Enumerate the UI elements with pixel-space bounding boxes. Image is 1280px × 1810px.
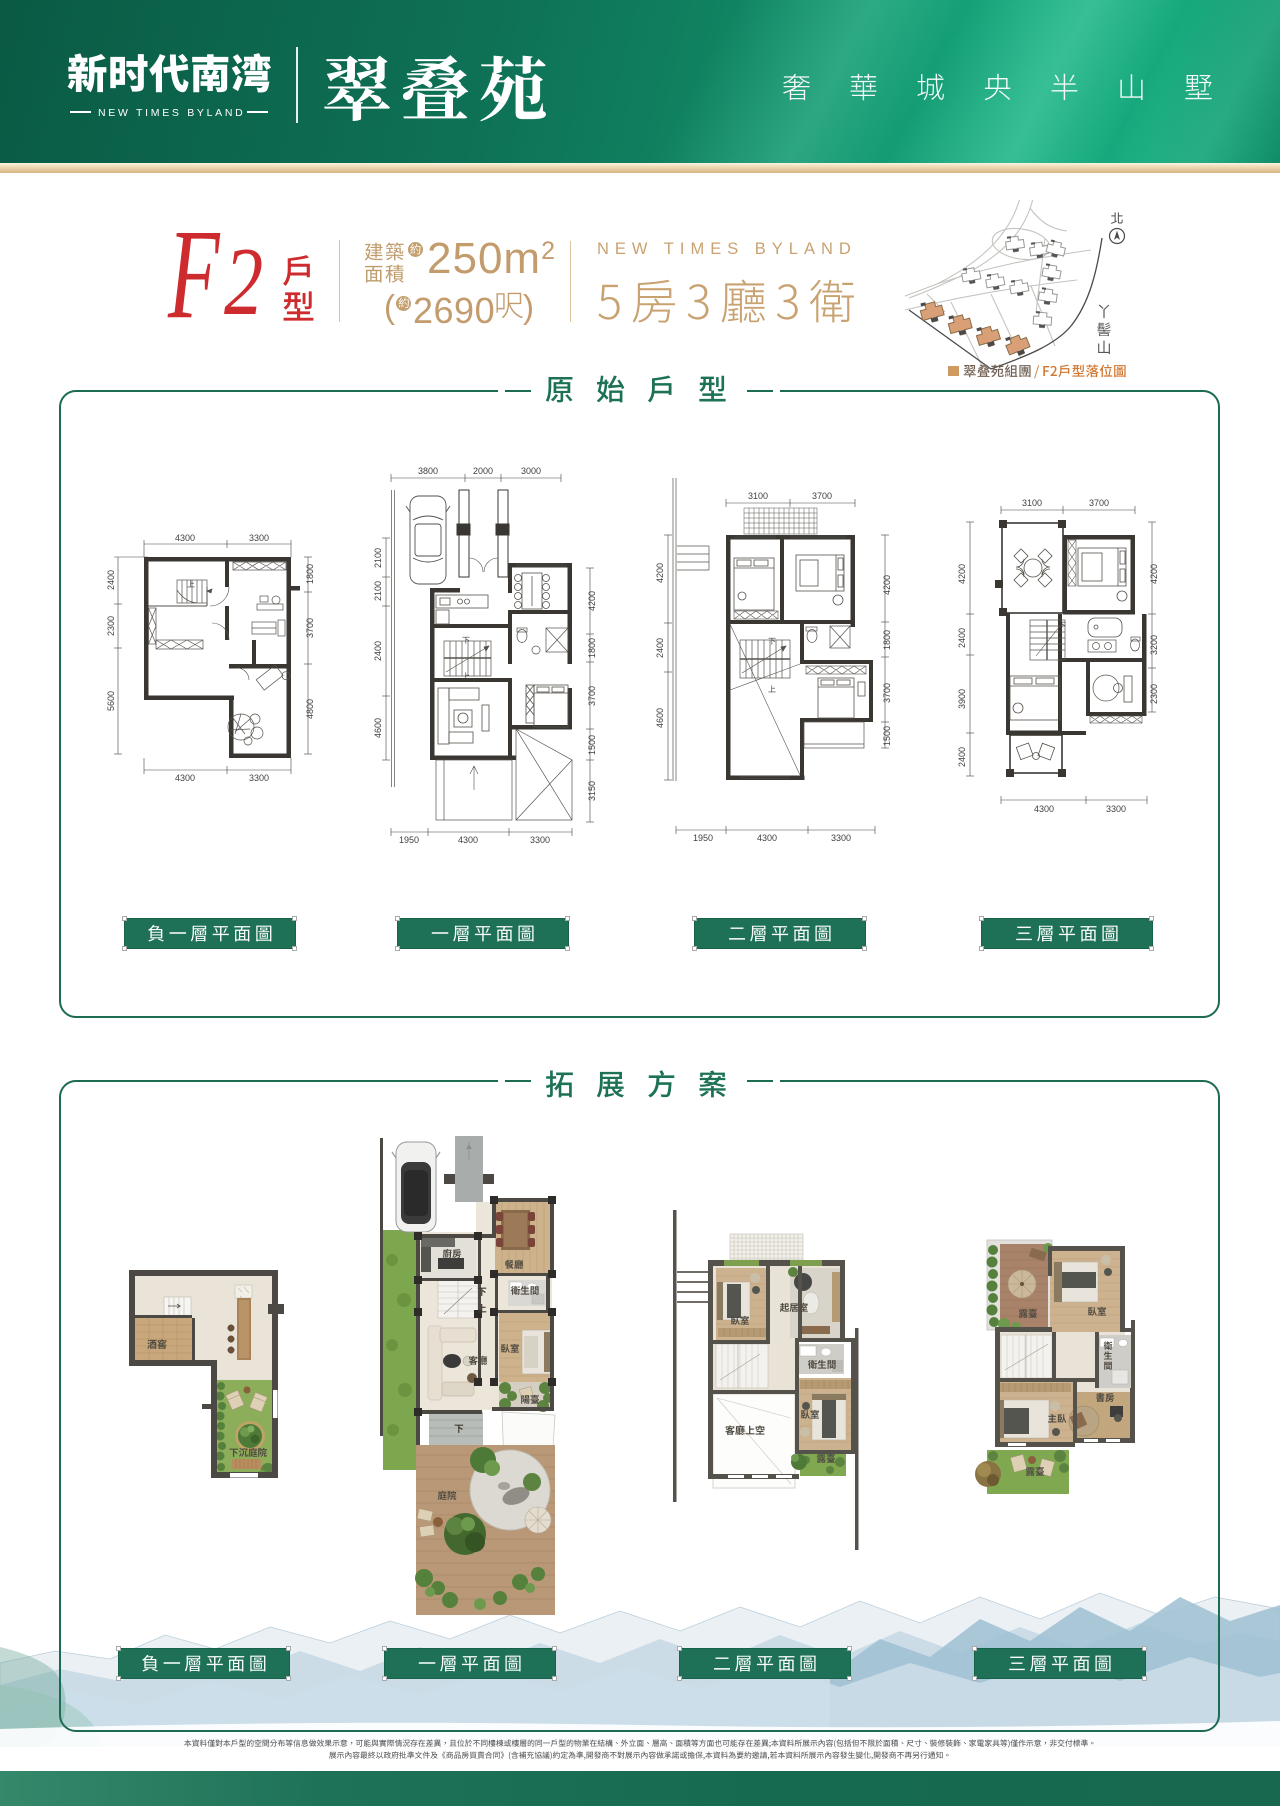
svg-text:4200: 4200 — [655, 563, 665, 583]
svg-text:2100: 2100 — [373, 548, 383, 568]
svg-text:3700: 3700 — [1089, 498, 1109, 508]
svg-text:4300: 4300 — [175, 533, 195, 543]
svg-text:3200: 3200 — [1149, 635, 1159, 655]
svg-text:2300: 2300 — [106, 616, 116, 636]
svg-text:4300: 4300 — [175, 773, 195, 783]
svg-text:4200: 4200 — [1149, 564, 1159, 584]
svg-text:3700: 3700 — [882, 683, 892, 703]
svg-text:3700: 3700 — [305, 618, 315, 638]
svg-text:3000: 3000 — [521, 466, 541, 476]
svg-text:4200: 4200 — [957, 564, 967, 584]
svg-text:3300: 3300 — [249, 773, 269, 783]
svg-text:4800: 4800 — [305, 699, 315, 719]
svg-text:2300: 2300 — [1149, 684, 1159, 704]
svg-text:1800: 1800 — [305, 564, 315, 584]
svg-text:1950: 1950 — [693, 833, 713, 843]
svg-text:1950: 1950 — [399, 835, 419, 845]
svg-text:1800: 1800 — [587, 638, 597, 658]
svg-text:1500: 1500 — [882, 726, 892, 746]
svg-text:2400: 2400 — [957, 747, 967, 767]
svg-text:3100: 3100 — [1022, 498, 1042, 508]
svg-text:1500: 1500 — [587, 735, 597, 755]
svg-text:3300: 3300 — [530, 835, 550, 845]
svg-text:3100: 3100 — [748, 491, 768, 501]
svg-text:3300: 3300 — [1106, 804, 1126, 814]
svg-text:5600: 5600 — [106, 691, 116, 711]
svg-text:3700: 3700 — [812, 491, 832, 501]
svg-text:3300: 3300 — [831, 833, 851, 843]
svg-text:3900: 3900 — [957, 689, 967, 709]
svg-text:3800: 3800 — [418, 466, 438, 476]
svg-text:4600: 4600 — [373, 718, 383, 738]
svg-text:2000: 2000 — [473, 466, 493, 476]
svg-text:3700: 3700 — [587, 686, 597, 706]
svg-text:4200: 4200 — [587, 591, 597, 611]
svg-text:4200: 4200 — [882, 575, 892, 595]
svg-text:1800: 1800 — [882, 630, 892, 650]
svg-text:2400: 2400 — [655, 638, 665, 658]
svg-text:4300: 4300 — [458, 835, 478, 845]
svg-text:2100: 2100 — [373, 581, 383, 601]
svg-text:3300: 3300 — [249, 533, 269, 543]
svg-text:3150: 3150 — [587, 781, 597, 801]
svg-text:4300: 4300 — [1034, 804, 1054, 814]
svg-text:4300: 4300 — [757, 833, 777, 843]
svg-text:2400: 2400 — [106, 570, 116, 590]
svg-text:2400: 2400 — [957, 628, 967, 648]
svg-text:4600: 4600 — [655, 708, 665, 728]
svg-text:2400: 2400 — [373, 641, 383, 661]
